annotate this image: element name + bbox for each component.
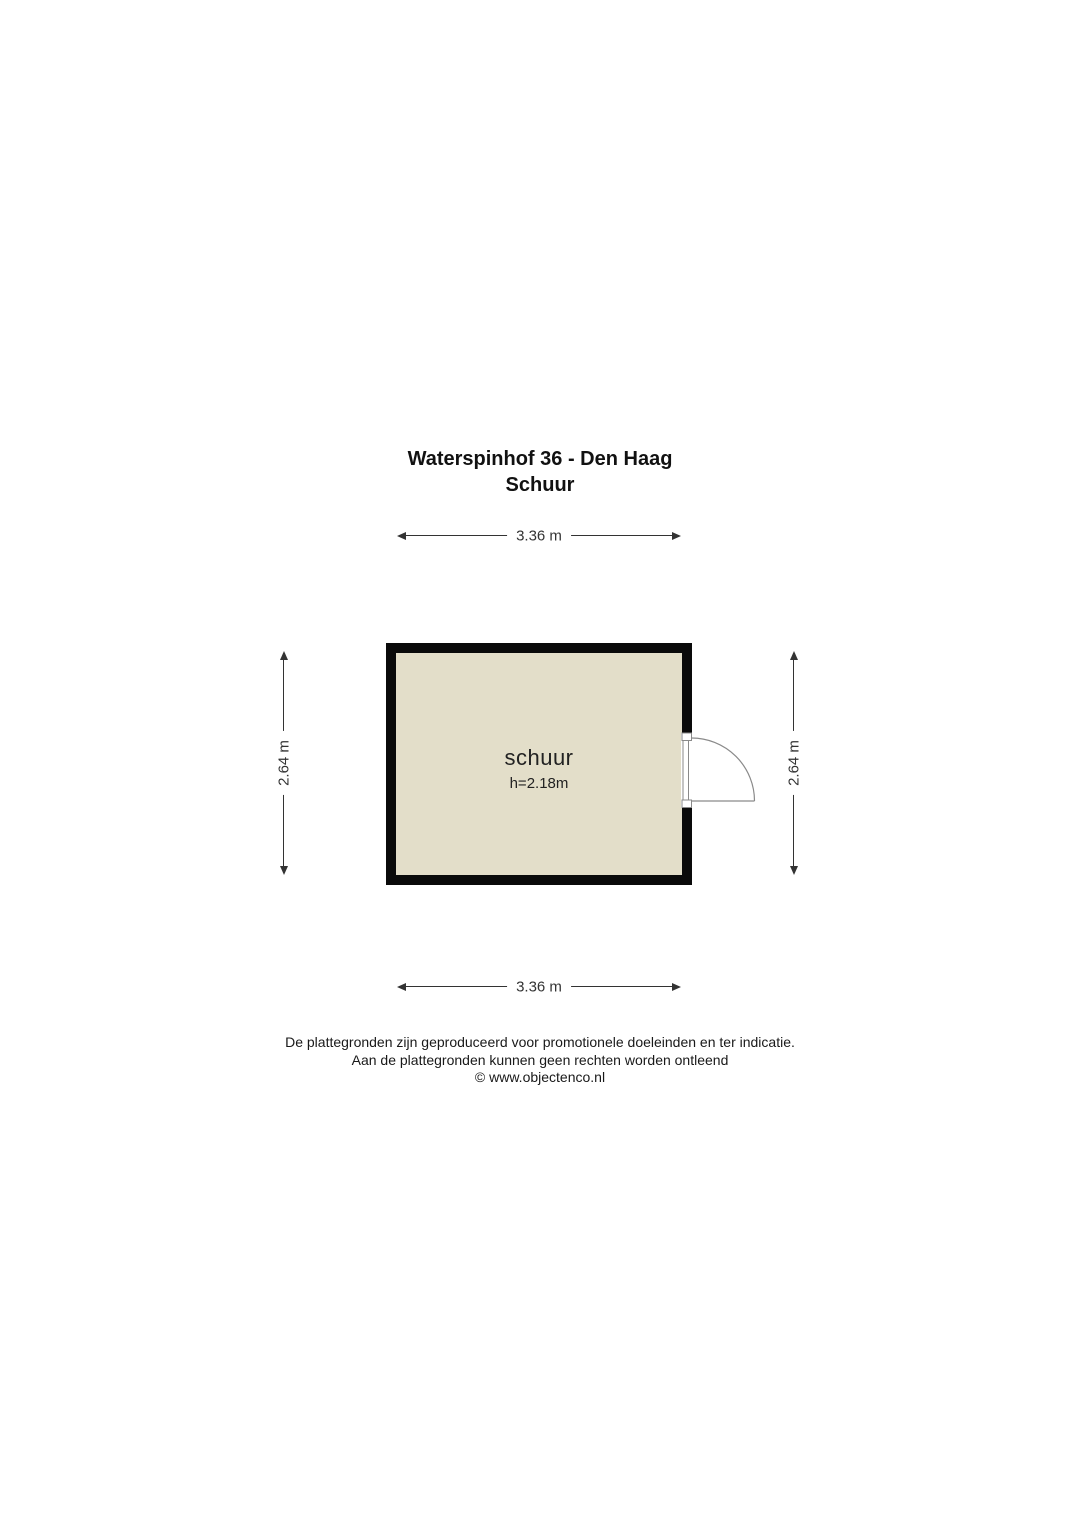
dimension-top: 3.36 m (397, 526, 681, 546)
arrow-left-icon (397, 983, 406, 991)
door-arc (692, 738, 755, 801)
door-swing-icon (678, 724, 768, 814)
room-name: schuur (504, 745, 573, 771)
arrow-right-icon (672, 983, 681, 991)
copyright-line: © www.objectenco.nl (0, 1069, 1080, 1087)
dimension-bottom-label: 3.36 m (507, 978, 571, 997)
dimension-right: 2.64 m (784, 651, 804, 875)
dimension-right-label: 2.64 m (785, 731, 804, 795)
room-schuur: schuur h=2.18m (386, 643, 692, 885)
dimension-bottom: 3.36 m (397, 977, 681, 997)
door-jamb-bottom (682, 800, 692, 808)
dimension-left-label: 2.64 m (275, 731, 294, 795)
title-block: Waterspinhof 36 - Den Haag Schuur (0, 446, 1080, 498)
page-title: Waterspinhof 36 - Den Haag (0, 446, 1080, 472)
floorplan-page: Waterspinhof 36 - Den Haag Schuur 3.36 m… (0, 0, 1080, 1527)
page-subtitle: Schuur (0, 472, 1080, 498)
dimension-left: 2.64 m (274, 651, 294, 875)
disclaimer-line-1: De plattegronden zijn geproduceerd voor … (0, 1034, 1080, 1052)
footer-disclaimer: De plattegronden zijn geproduceerd voor … (0, 1034, 1080, 1087)
disclaimer-line-2: Aan de plattegronden kunnen geen rechten… (0, 1052, 1080, 1070)
arrow-down-icon (790, 866, 798, 875)
room-label: schuur h=2.18m (396, 657, 682, 879)
room-height-label: h=2.18m (510, 775, 569, 792)
door-frame (683, 740, 689, 801)
arrow-left-icon (397, 532, 406, 540)
arrow-up-icon (280, 651, 288, 660)
arrow-up-icon (790, 651, 798, 660)
arrow-right-icon (672, 532, 681, 540)
arrow-down-icon (280, 866, 288, 875)
door-jamb-top (682, 733, 692, 741)
dimension-top-label: 3.36 m (507, 527, 571, 546)
